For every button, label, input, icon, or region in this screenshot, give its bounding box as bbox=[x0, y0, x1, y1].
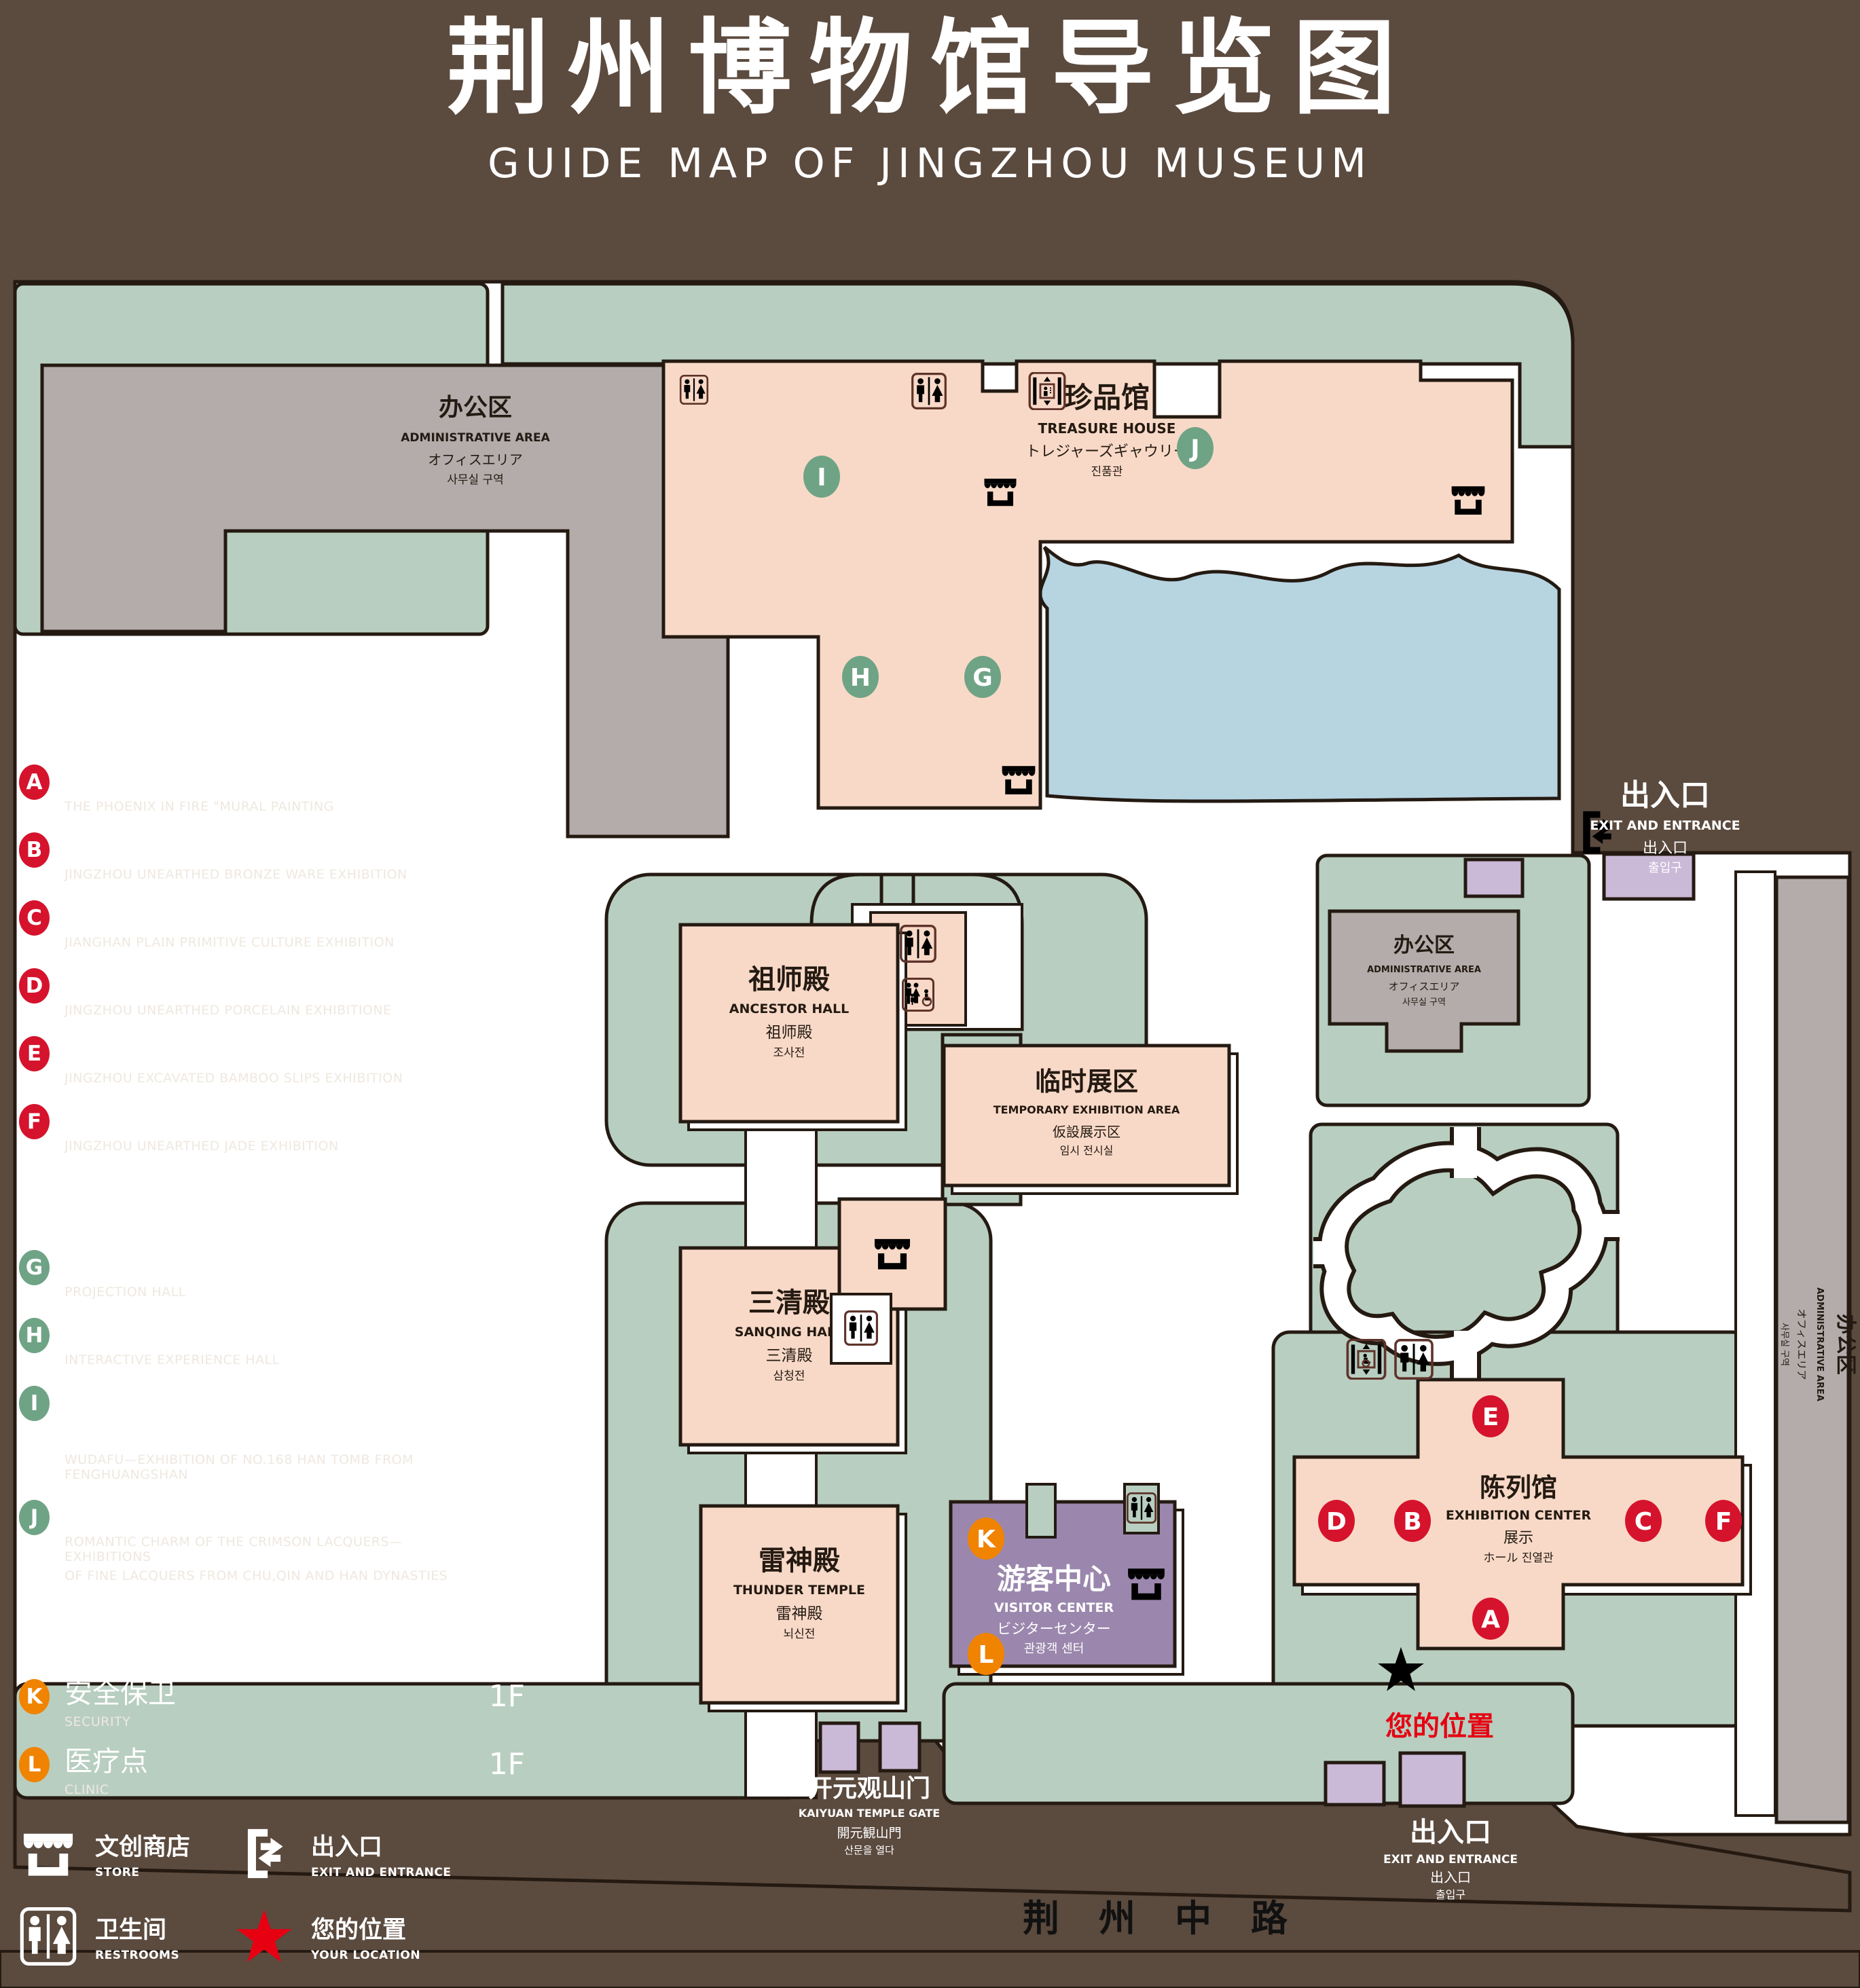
restroom-icon bbox=[19, 1907, 77, 1966]
gate-ja: 開元観山門 bbox=[837, 1826, 901, 1841]
legend-item-E: E 荆州出土简牍展 JINGZHOU EXCAVATED BAMBOO SLIP… bbox=[19, 1035, 525, 1086]
poster-title: 荆州博物馆导览图 GUIDE MAP OF JINGZHOU MUSEUM bbox=[0, 7, 1860, 187]
item-floor: 2F bbox=[464, 968, 525, 1003]
icon-label-zh: 卫生间 bbox=[95, 1911, 179, 1945]
section-title-en: EXHIBITION CENTER bbox=[151, 706, 434, 735]
treasure-en: TREASURE HOUSE bbox=[1038, 420, 1176, 437]
sanqing-ko: 삼청전 bbox=[773, 1369, 805, 1383]
marker-badge: H bbox=[19, 1318, 50, 1353]
purple-bldg-bottom-exit-2 bbox=[1400, 1753, 1464, 1806]
legend-section-exhibition: 陈列馆 EXHIBITION CENTER bbox=[19, 686, 525, 740]
admin-side-zh: 办公区 bbox=[1834, 1314, 1857, 1375]
marker-G: G bbox=[964, 656, 1001, 698]
admin-r-en: ADMINISTRATIVE AREA bbox=[1367, 965, 1481, 975]
temp-en: TEMPORARY EXHIBITION AREA bbox=[993, 1103, 1180, 1116]
svg-text:K: K bbox=[977, 1526, 996, 1553]
icon-label-en: STORE bbox=[95, 1866, 190, 1879]
marker-K: K bbox=[968, 1517, 1004, 1560]
exit-bottom-en: EXIT AND ENTRANCE bbox=[1383, 1853, 1518, 1866]
svg-text:F: F bbox=[1715, 1508, 1732, 1536]
thunder-en: THUNDER TEMPLE bbox=[733, 1583, 865, 1598]
temp-zh: 临时展区 bbox=[1035, 1067, 1138, 1097]
item-floor: 1-2F bbox=[464, 1500, 525, 1569]
elevator-icon bbox=[1029, 373, 1065, 409]
marker-B: B bbox=[1394, 1500, 1431, 1542]
marker-A: A bbox=[1472, 1598, 1509, 1640]
svg-text:C: C bbox=[1635, 1508, 1652, 1536]
sanqing-en: SANQING HALL bbox=[735, 1325, 843, 1340]
exhibition-ko: ホール 진열관 bbox=[1483, 1551, 1553, 1565]
marker-badge: K bbox=[19, 1679, 50, 1714]
marker-badge: I bbox=[19, 1386, 50, 1421]
visitor-ko: 관광객 센터 bbox=[1024, 1642, 1084, 1656]
thunder-zh: 雷神殿 bbox=[759, 1545, 840, 1577]
svg-text:E: E bbox=[1482, 1403, 1499, 1431]
section-title-zh: 珍品馆 bbox=[19, 1172, 129, 1226]
pond bbox=[1040, 547, 1559, 801]
item-caption: CLINIC bbox=[65, 1782, 464, 1797]
legend-item-F: F 荆州出土玉器展 JINGZHOU UNEARTHED JADE EXHIBI… bbox=[19, 1103, 525, 1154]
item-name: 放映厅 bbox=[65, 1249, 464, 1281]
legend-panel: 陈列馆 EXHIBITION CENTER A 《火中的凤凰》壁画 THE PH… bbox=[19, 669, 525, 1988]
item-caption: WUDAFU—EXHIBITION OF NO.168 HAN TOMB FRO… bbox=[65, 1452, 464, 1482]
treasure-ko: 진품관 bbox=[1091, 465, 1123, 479]
gate-pillar-left bbox=[820, 1723, 858, 1772]
ancestor-zh: 祖师殿 bbox=[748, 964, 830, 995]
admin-tl-zh: 办公区 bbox=[439, 394, 512, 422]
legend-exit: 出入口 EXIT AND ENTRANCE bbox=[235, 1824, 451, 1883]
visitor-en: VISITOR CENTER bbox=[994, 1600, 1114, 1615]
exit-bottom-zh: 出入口 bbox=[1410, 1817, 1491, 1848]
svg-text:H: H bbox=[850, 664, 871, 692]
marker-H: H bbox=[842, 656, 879, 698]
legend-item-A: A 《火中的凤凰》壁画 THE PHOENIX IN FIRE "MURAL P… bbox=[19, 763, 525, 815]
svg-text:D: D bbox=[1326, 1508, 1347, 1536]
item-floor: 1F bbox=[464, 832, 525, 867]
svg-text:A: A bbox=[1481, 1606, 1500, 1634]
exhibition-ja: 展示 bbox=[1503, 1530, 1533, 1547]
legend-item-H: H 互动体验厅 INTERACTIVE EXPERIENCE HALL 1F bbox=[19, 1317, 525, 1368]
visitor-zh: 游客中心 bbox=[997, 1562, 1111, 1596]
corridor-thunder bbox=[746, 1700, 816, 1798]
item-caption: PROJECTION HALL bbox=[65, 1285, 464, 1300]
item-caption: JINGZHOU UNEARTHED BRONZE WARE EXHIBITIO… bbox=[65, 867, 464, 882]
exit-entrance-icon bbox=[235, 1824, 293, 1883]
item-caption: JINGZHOU UNEARTHED JADE EXHIBITION bbox=[65, 1139, 464, 1154]
gate-zh: 开元观山门 bbox=[808, 1775, 930, 1803]
item-caption: JINGZHOU UNEARTHED PORCELAIN EXHIBITIONE bbox=[65, 1003, 464, 1018]
thunder-ja: 雷神殿 bbox=[776, 1605, 823, 1623]
item-floor: 2F bbox=[464, 1104, 525, 1139]
store-kiosk-box bbox=[839, 1199, 945, 1309]
visitor-ja: ビジターセンター bbox=[997, 1621, 1111, 1637]
item-floor: 1F bbox=[464, 765, 525, 799]
marker-badge: A bbox=[19, 765, 50, 800]
icon-label-zh: 您的位置 bbox=[311, 1911, 420, 1945]
exit-right-zh: 出入口 bbox=[1620, 778, 1710, 813]
marker-L: L bbox=[968, 1633, 1004, 1675]
section-title-zh: 游客中心 bbox=[19, 1601, 166, 1655]
exit-right-en: EXIT AND ENTRANCE bbox=[1590, 818, 1740, 833]
exit-right-ja: 出入口 bbox=[1643, 840, 1688, 857]
legend-restrooms: 卫生间 RESTROOMS bbox=[19, 1907, 179, 1966]
svg-text:B: B bbox=[1403, 1508, 1421, 1536]
building-ancestor-hall bbox=[680, 925, 898, 1122]
exhibition-en: EXHIBITION CENTER bbox=[1446, 1508, 1592, 1523]
legend-item-L: L 医疗点 CLINIC 1F bbox=[19, 1746, 525, 1797]
icon-label-en: RESTROOMS bbox=[95, 1949, 179, 1962]
marker-badge: G bbox=[19, 1250, 50, 1285]
ancestor-ja: 祖师殿 bbox=[766, 1024, 813, 1042]
legend-item-J: J 丹漆神韵——楚秦汉漆器精品展 ROMANTIC CHARM OF THE C… bbox=[19, 1498, 525, 1583]
item-name: 安全保卫 bbox=[65, 1678, 464, 1710]
marker-badge: E bbox=[19, 1036, 50, 1071]
admin-tl-ko: 사무실 구역 bbox=[447, 473, 504, 487]
item-floor: 1F bbox=[464, 1318, 525, 1352]
legend-store: 文创商店 STORE bbox=[19, 1824, 190, 1883]
purple-bldg-admin-top bbox=[1465, 860, 1522, 896]
item-name: 互动体验厅 bbox=[65, 1317, 464, 1348]
item-caption: INTERACTIVE EXPERIENCE HALL bbox=[65, 1352, 464, 1367]
item-floor: 1F bbox=[464, 1679, 525, 1714]
item-caption-2: OF FINE LACQUERS FROM CHU,QIN AND HAN DY… bbox=[65, 1568, 464, 1583]
item-name: 医疗点 bbox=[65, 1746, 464, 1778]
green-bottom-right bbox=[944, 1684, 1573, 1803]
thunder-ko: 뇌신전 bbox=[784, 1627, 816, 1641]
item-caption: JINGZHOU EXCAVATED BAMBOO SLIPS EXHIBITI… bbox=[65, 1071, 464, 1086]
icon-label-zh: 出入口 bbox=[311, 1828, 451, 1862]
admin-r-ja: オフィスエリア bbox=[1389, 980, 1460, 993]
legend-item-D: D 荆州出土瓷器展 JINGZHOU UNEARTHED PORCELAIN E… bbox=[19, 967, 525, 1018]
right-road bbox=[1736, 872, 1775, 1816]
item-floor: 1F bbox=[464, 1250, 525, 1285]
exhibition-zh: 陈列馆 bbox=[1480, 1473, 1557, 1503]
visitor-green-tab-1 bbox=[1027, 1484, 1055, 1537]
item-floor: 2F bbox=[464, 1036, 525, 1071]
marker-badge: J bbox=[19, 1500, 50, 1535]
svg-text:J: J bbox=[1188, 435, 1199, 463]
marker-J: J bbox=[1177, 427, 1214, 469]
item-caption: SECURITY bbox=[65, 1714, 464, 1729]
admin-side-en: ADMINISTRATIVE AREA bbox=[1815, 1287, 1825, 1401]
item-name: 五大夫遂——凤凰山168号汉墓展 bbox=[65, 1384, 464, 1448]
exit-right-ko: 출입구 bbox=[1648, 861, 1682, 875]
item-floor: 1F bbox=[464, 1747, 525, 1782]
legend-item-B: B 荆州出土铜器展 JINGZHOU UNEARTHED BRONZE WARE… bbox=[19, 831, 525, 883]
building-thunder-temple bbox=[701, 1506, 898, 1703]
legend-section-visitor: 游客中心 VISITOR CENTER bbox=[19, 1601, 525, 1655]
purple-bldg-bottom-exit-1 bbox=[1326, 1763, 1384, 1805]
svg-text:G: G bbox=[972, 664, 993, 692]
corridor-ancestor bbox=[746, 1117, 816, 1253]
ancestor-ko: 조사전 bbox=[773, 1046, 805, 1060]
store-icon bbox=[19, 1824, 77, 1883]
item-name: 荆州出土瓷器展 bbox=[65, 967, 464, 999]
marker-F: F bbox=[1705, 1500, 1742, 1542]
gate-ko: 산문을 열다 bbox=[844, 1844, 894, 1856]
your-location-label: 您的位置 bbox=[1385, 1711, 1494, 1742]
icon-label-en: EXIT AND ENTRANCE bbox=[311, 1866, 451, 1879]
section-title-en: TREASURE HOUSE bbox=[151, 1192, 405, 1221]
temp-ja: 仮設展示区 bbox=[1053, 1124, 1120, 1140]
exit-bottom-ja: 出入口 bbox=[1430, 1869, 1471, 1885]
marker-E: E bbox=[1472, 1395, 1509, 1437]
legend-your-location: 您的位置 YOUR LOCATION bbox=[235, 1907, 420, 1966]
exit-bottom-ko: 출입구 bbox=[1436, 1888, 1465, 1901]
marker-badge: D bbox=[19, 968, 50, 1004]
marker-badge: L bbox=[19, 1747, 50, 1782]
marker-D: D bbox=[1318, 1500, 1355, 1542]
title-zh: 荆州博物馆导览图 bbox=[0, 7, 1860, 130]
admin-side-ko: 사무실 구역 bbox=[1779, 1323, 1789, 1366]
svg-text:L: L bbox=[979, 1641, 994, 1669]
item-name: 荆州出土铜器展 bbox=[65, 831, 464, 863]
guide-map-poster: { "colors":{"background":"#5b4a3e","gree… bbox=[0, 0, 1860, 1988]
marker-badge: C bbox=[19, 900, 50, 936]
item-name: 丹漆神韵——楚秦汉漆器精品展 bbox=[65, 1498, 464, 1530]
gate-pillar-right bbox=[880, 1723, 919, 1771]
item-caption: ROMANTIC CHARM OF THE CRIMSON LACQUERS—E… bbox=[65, 1534, 464, 1564]
treasure-zh: 珍品馆 bbox=[1064, 381, 1150, 414]
treasure-ja: トレジャーズギャウリー bbox=[1025, 443, 1188, 460]
item-name: 荆州出土简牍展 bbox=[65, 1035, 464, 1067]
section-title-en: VISITOR CENTER bbox=[187, 1621, 420, 1650]
legend-section-treasure: 珍品馆 TREASURE HOUSE bbox=[19, 1172, 525, 1226]
sanqing-ja: 三清殿 bbox=[766, 1347, 813, 1365]
admin-r-ko: 사무실 구역 bbox=[1402, 997, 1446, 1008]
legend-item-C: C 江汉平原原始文化展 JIANGHAN PLAIN PRIMITIVE CUL… bbox=[19, 899, 525, 951]
title-en: GUIDE MAP OF JINGZHOU MUSEUM bbox=[0, 140, 1860, 187]
item-name: 荆州出土玉器展 bbox=[65, 1103, 464, 1135]
marker-I: I bbox=[803, 456, 840, 498]
temp-ko: 임시 전시실 bbox=[1060, 1144, 1114, 1157]
legend-item-I: I 五大夫遂——凤凰山168号汉墓展 WUDAFU—EXHIBITION OF … bbox=[19, 1384, 525, 1482]
legend-item-K: K 安全保卫 SECURITY 1F bbox=[19, 1678, 525, 1729]
accessible-elevator-icon bbox=[1347, 1340, 1385, 1379]
road-name: 荆州中路 bbox=[1023, 1897, 1327, 1940]
icon-label-en: YOUR LOCATION bbox=[311, 1949, 420, 1962]
item-caption: JIANGHAN PLAIN PRIMITIVE CULTURE EXHIBIT… bbox=[65, 935, 464, 950]
legend-icons: 文创商店 STORE 卫生间 RESTROOMS 家庭卫生间 FAMILY RE… bbox=[19, 1824, 525, 1988]
legend-item-G: G 放映厅 PROJECTION HALL 1F bbox=[19, 1249, 525, 1300]
item-caption: THE PHOENIX IN FIRE "MURAL PAINTING bbox=[65, 799, 464, 814]
marker-badge: B bbox=[19, 832, 50, 868]
section-title-zh: 陈列馆 bbox=[19, 686, 129, 740]
ancestor-en: ANCESTOR HALL bbox=[729, 1001, 849, 1016]
svg-text:I: I bbox=[817, 464, 826, 492]
sanqing-zh: 三清殿 bbox=[748, 1287, 830, 1319]
icon-label-zh: 文创商店 bbox=[95, 1828, 190, 1862]
admin-side-ja: オフィスエリア bbox=[1795, 1309, 1808, 1380]
marker-badge: F bbox=[19, 1104, 50, 1139]
admin-r-zh: 办公区 bbox=[1393, 934, 1455, 957]
admin-tl-ja: オフィスエリア bbox=[428, 452, 523, 468]
admin-tl-en: ADMINISTRATIVE AREA bbox=[401, 431, 550, 445]
marker-C: C bbox=[1625, 1500, 1662, 1542]
gate-en: KAIYUAN TEMPLE GATE bbox=[799, 1807, 940, 1820]
your-location-star bbox=[235, 1907, 293, 1966]
item-floor: 2F bbox=[464, 1386, 525, 1420]
item-name: 《火中的凤凰》壁画 bbox=[65, 763, 464, 795]
item-name: 江汉平原原始文化展 bbox=[65, 899, 464, 931]
item-floor: 1F bbox=[464, 900, 525, 935]
